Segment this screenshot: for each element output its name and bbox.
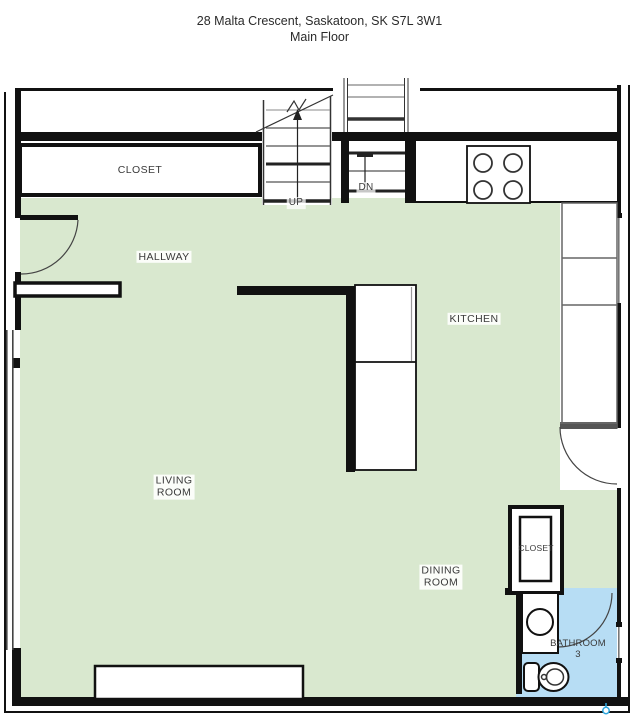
- dining-room-line1: DINING: [421, 565, 460, 577]
- toilet-icon: [524, 663, 569, 691]
- living-room-line1: LIVING: [156, 475, 193, 487]
- island-wall-horizontal: [237, 286, 355, 295]
- right-wall-upper: [617, 85, 621, 218]
- room-label-hallway: HALLWAY: [136, 251, 191, 263]
- upper-interior-wall-right: [332, 132, 617, 141]
- bottom-outer-line: [4, 711, 628, 713]
- stairwell-wall-left: [341, 141, 349, 203]
- bathroom-line1: BATHROOM: [550, 638, 606, 649]
- left-wall-mid: [15, 296, 21, 330]
- stove-icon: [467, 146, 530, 203]
- right-outer-line: [628, 85, 630, 713]
- room-label-closet-bottom: CLOSET: [516, 543, 555, 553]
- bath-window-block-top: [616, 622, 622, 627]
- dining-room-line2: ROOM: [421, 577, 460, 589]
- right-counter-strip: [562, 203, 617, 428]
- floor-plan: 28 Malta Crescent, Saskatoon, SK S7L 3W1…: [0, 0, 639, 720]
- room-label-kitchen: KITCHEN: [448, 313, 501, 325]
- entry-door-leaf: [20, 215, 78, 220]
- left-outer-line: [4, 92, 6, 712]
- bathroom-line2: 3: [550, 649, 606, 660]
- plan-title: 28 Malta Crescent, Saskatoon, SK S7L 3W1…: [0, 13, 639, 45]
- kitchen-window-line: [618, 218, 620, 303]
- toilet-tank: [524, 663, 539, 691]
- fireplace-outline: [95, 666, 303, 699]
- upper-interior-wall-left: [15, 132, 262, 141]
- room-label-bathroom: BATHROOM 3: [548, 638, 608, 660]
- sink-icon: [527, 609, 553, 635]
- back-door-leaf: [560, 424, 617, 429]
- top-wall-left: [15, 88, 333, 91]
- stairs-down-label: DN: [356, 182, 375, 194]
- bath-window-line: [618, 627, 620, 663]
- living-room-line2: ROOM: [156, 487, 193, 499]
- right-wall-dining: [617, 488, 621, 627]
- living-window-inner-line: [12, 330, 14, 650]
- top-wall-right: [420, 88, 617, 91]
- hallway-stub-wall: [15, 283, 120, 296]
- plan-title-address: 28 Malta Crescent, Saskatoon, SK S7L 3W1: [0, 13, 639, 29]
- stairs-up-label: UP: [287, 197, 306, 209]
- room-label-closet-top: CLOSET: [116, 164, 164, 176]
- living-window-outer-line: [6, 330, 8, 650]
- right-wall-bathroom: [617, 663, 621, 706]
- plan-title-floor: Main Floor: [0, 29, 639, 45]
- island-counter-outline: [355, 285, 416, 470]
- island-counter: [355, 285, 416, 470]
- fireplace: [95, 666, 303, 699]
- island-wall-vertical: [346, 286, 355, 472]
- room-label-living-room: LIVING ROOM: [154, 475, 195, 500]
- stairwell-wall-right: [405, 141, 416, 203]
- floor-plan-drawing: [0, 0, 639, 720]
- bath-window-block-bottom: [616, 658, 622, 663]
- room-label-dining-room: DINING ROOM: [419, 565, 462, 590]
- blue-marker-dot: [603, 707, 609, 713]
